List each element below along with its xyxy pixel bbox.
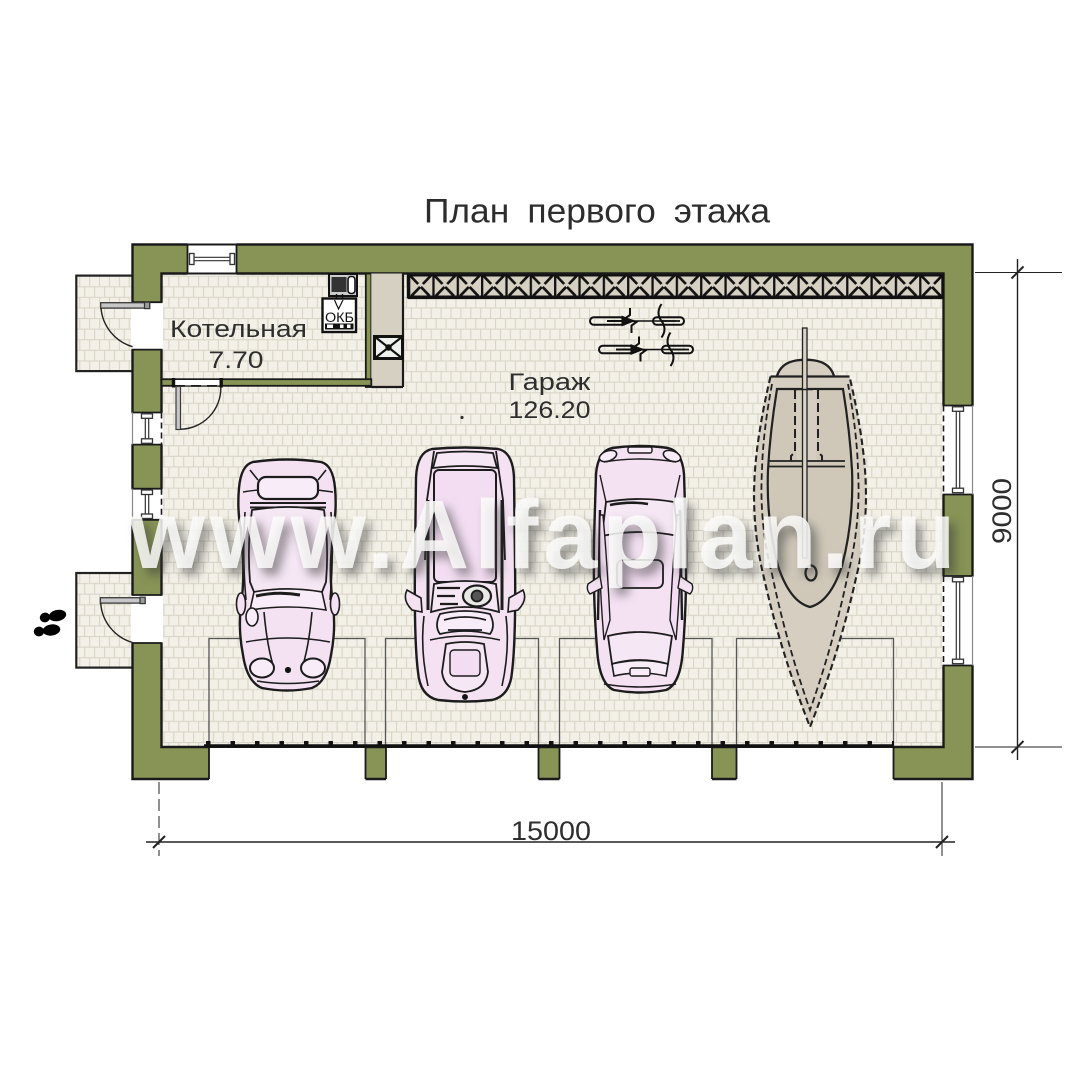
svg-text:9000: 9000	[987, 478, 1017, 544]
svg-text:7.70: 7.70	[209, 347, 264, 374]
svg-text:15000: 15000	[511, 816, 591, 846]
svg-text:Котельная: Котельная	[170, 316, 307, 343]
svg-text:126.20: 126.20	[509, 397, 591, 424]
svg-text:План первого этажа: План первого этажа	[424, 193, 770, 231]
svg-text:ОКБ: ОКБ	[325, 310, 354, 325]
svg-text:Гараж: Гараж	[509, 369, 592, 396]
